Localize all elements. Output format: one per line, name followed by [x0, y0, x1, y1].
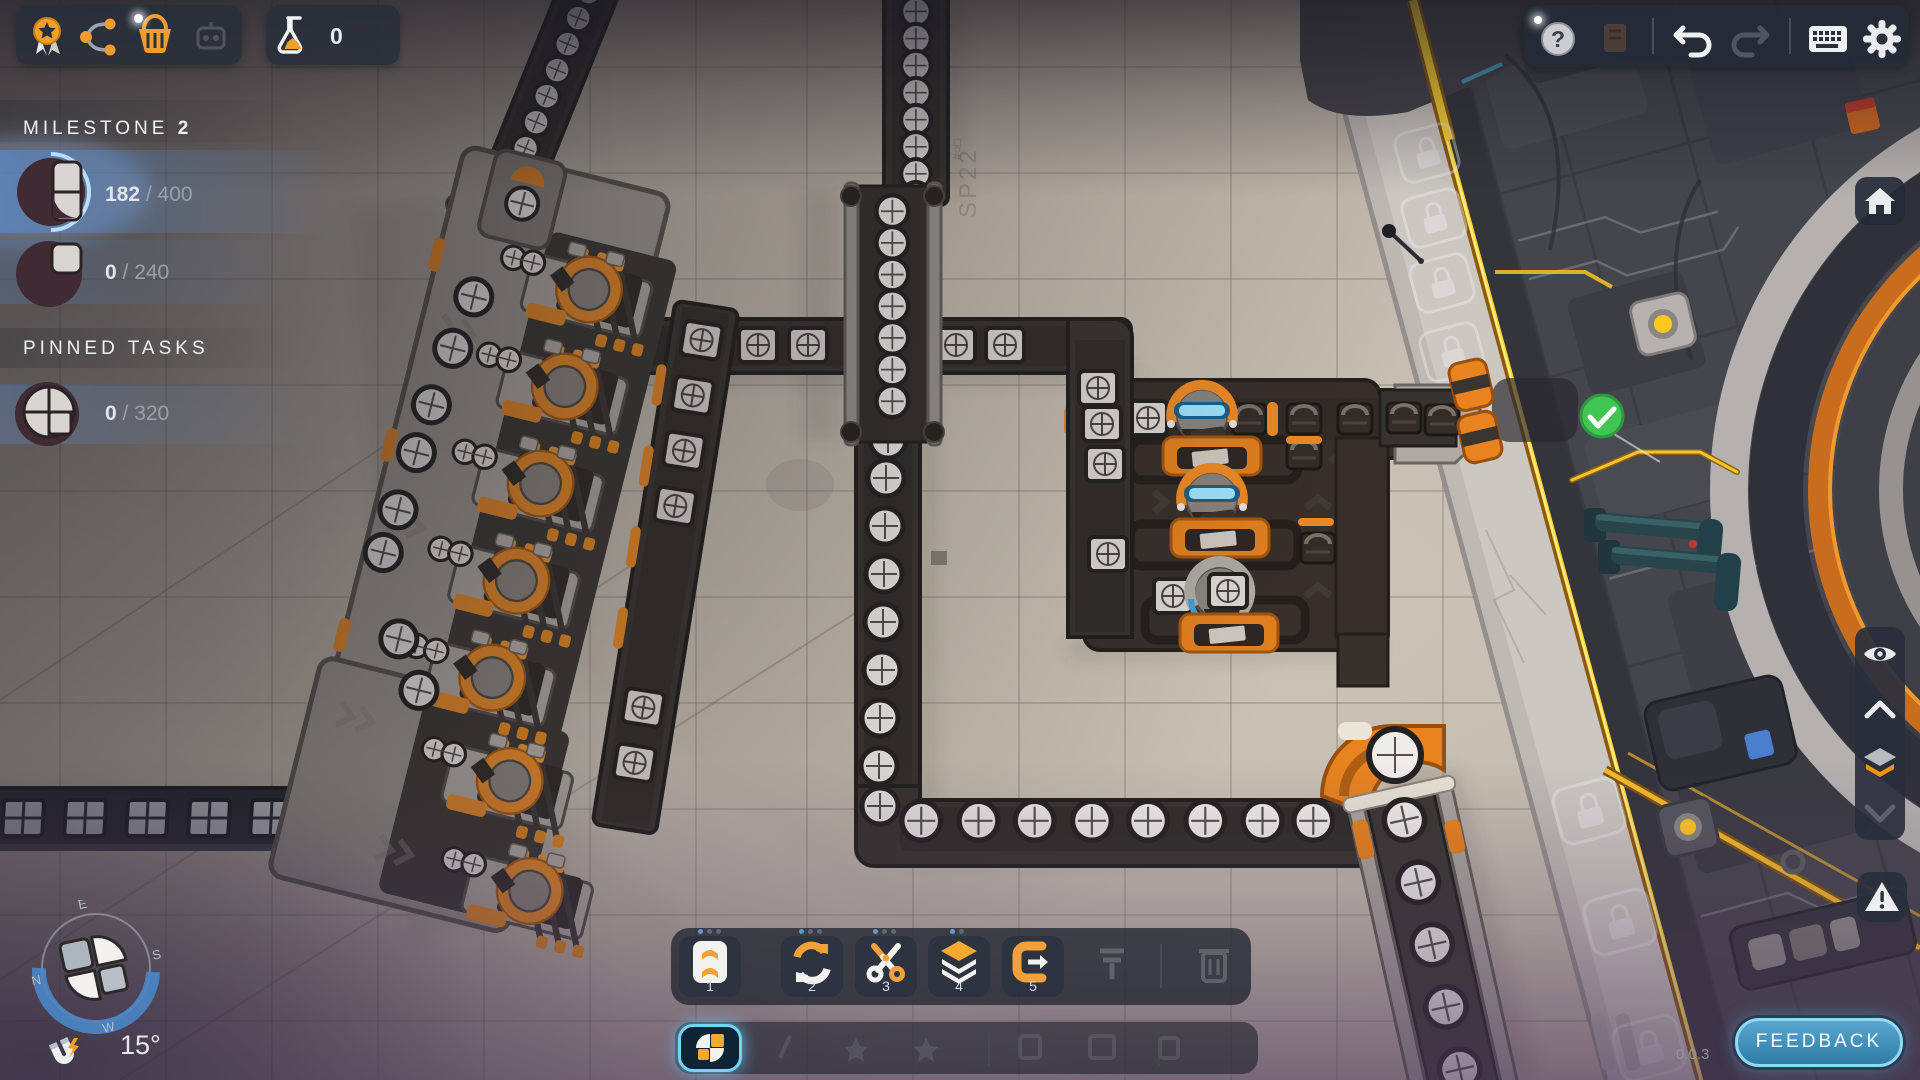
svg-text:?: ? — [1551, 26, 1565, 52]
svg-text:E: E — [77, 900, 89, 912]
svg-text:S: S — [151, 946, 163, 963]
